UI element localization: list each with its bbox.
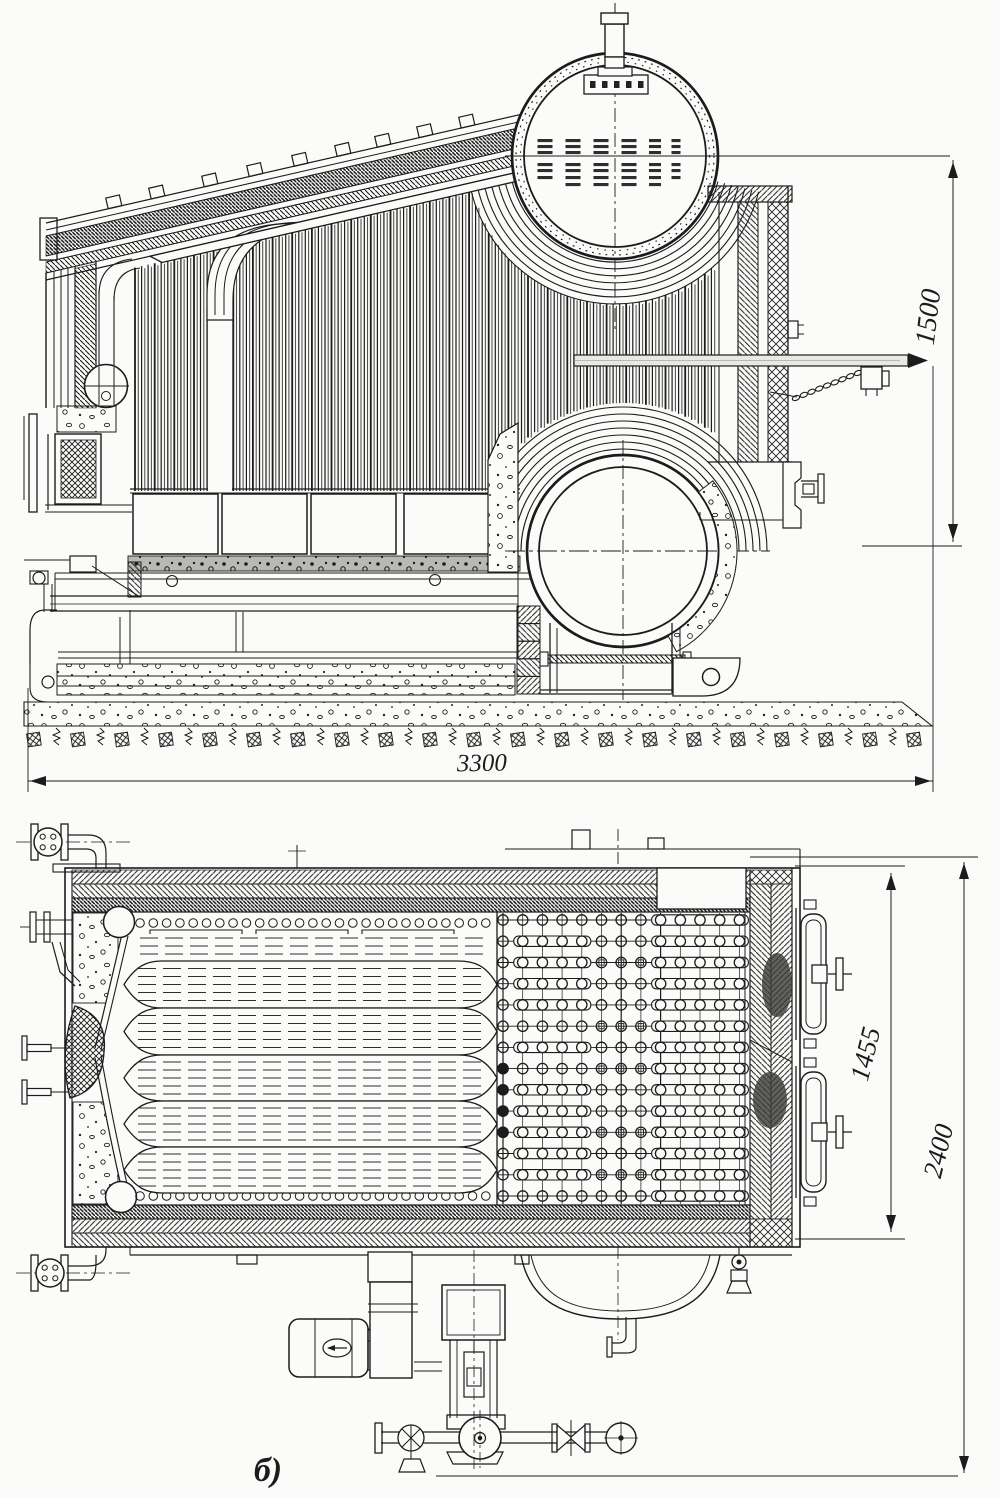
svg-text:3300: 3300 bbox=[456, 750, 508, 778]
svg-text:б): б) bbox=[254, 1452, 282, 1489]
